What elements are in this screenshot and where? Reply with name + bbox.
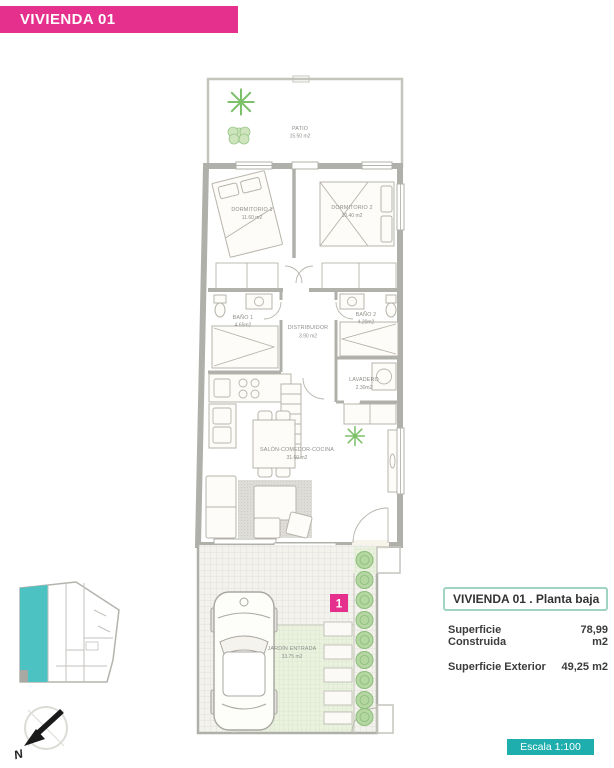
surface-label: Superficie Construida	[448, 624, 562, 648]
toilet-icon	[386, 295, 396, 317]
page: VIVIENDA 01	[0, 0, 614, 768]
room-label-distribuidor: DISTRIBUIDOR	[288, 325, 328, 331]
bed-icon	[212, 171, 283, 258]
dining-table-icon	[253, 411, 295, 477]
entrance-door-icon	[352, 508, 389, 549]
garden-area: JARDÍN ENTRADA 33.75 m2 1	[198, 545, 400, 733]
console-icon	[388, 430, 397, 492]
room-label-bano-1: BAÑO 1	[233, 314, 254, 321]
room-area-lavadero: 2.30m2	[356, 385, 373, 391]
surface-value: 78,99 m2	[562, 624, 608, 648]
surface-info: Superficie Construida 78,99 m2 Superfici…	[448, 624, 608, 686]
hedge-bushes-icon	[356, 552, 373, 726]
room-label-lavadero: LAVADERO	[349, 377, 379, 383]
room-area-dormitorio-1: 11.60 m2	[242, 215, 263, 221]
room-label-bano-2: BAÑO 2	[356, 311, 377, 318]
room-area-patio: 15.50 m2	[290, 134, 311, 140]
step-icon	[377, 547, 400, 573]
door-arc-icon	[303, 378, 324, 399]
room-label-salon: SALÓN-COMEDOR-COCINA	[260, 446, 334, 453]
room-bano-1: BAÑO 1 4.65m2	[212, 294, 281, 368]
unit-marker: 1	[330, 594, 348, 612]
highlighted-unit	[20, 585, 48, 682]
room-label-patio: PATIO	[292, 126, 308, 132]
kitchen-sink-icon	[209, 404, 236, 448]
room-area-salon: 31.60 m2	[287, 455, 308, 461]
patio-area: PATIO 15.50 m2	[208, 76, 402, 166]
surface-value: 49,25 m2	[562, 661, 608, 673]
room-dormitorio-2: DORMITORIO 2 10.40 m2	[320, 182, 396, 289]
kitchen-counter-icon	[209, 374, 291, 402]
surface-row: Superficie Construida 78,99 m2	[448, 624, 608, 648]
bush-icon	[228, 127, 250, 144]
plant-icon	[228, 89, 253, 114]
shower-icon	[340, 322, 398, 356]
room-label-dormitorio-2: DORMITORIO 2	[331, 205, 372, 211]
surface-row: Superficie Exterior 49,25 m2	[448, 661, 608, 673]
sink-icon	[340, 294, 364, 309]
room-dormitorio-1: DORMITORIO 1 11.60 m2	[212, 171, 283, 289]
room-bano-2: BAÑO 2 4.20m2	[336, 294, 398, 356]
north-label: N	[12, 746, 24, 762]
surface-label: Superficie Exterior	[448, 661, 546, 673]
room-label-dormitorio-1: DORMITORIO 1	[231, 207, 272, 213]
room-area-jardin: 33.75 m2	[282, 654, 303, 660]
north-compass-icon: N	[12, 707, 67, 762]
door-arc-icon	[285, 266, 313, 283]
site-key-plan	[20, 582, 119, 682]
scale-badge: Escala 1:100	[507, 739, 594, 755]
bathtub-icon	[212, 326, 278, 368]
room-area-distribuidor: 3.90 m2	[299, 334, 317, 340]
step-icon	[377, 705, 393, 733]
room-area-bano-2: 4.20m2	[358, 320, 375, 326]
plan-title: VIVIENDA 01 . Planta baja	[453, 592, 599, 606]
room-area-bano-1: 4.65m2	[235, 323, 252, 329]
sink-icon	[246, 294, 272, 309]
plant-icon	[346, 427, 365, 446]
room-area-dormitorio-2: 10.40 m2	[342, 213, 363, 219]
unit-marker-number: 1	[336, 599, 343, 611]
room-label-jardin: JARDÍN ENTRADA	[268, 645, 317, 652]
toilet-icon	[214, 295, 226, 317]
site-detail	[20, 670, 28, 682]
plan-title-box: VIVIENDA 01 . Planta baja	[443, 587, 608, 611]
car-icon	[211, 592, 277, 730]
